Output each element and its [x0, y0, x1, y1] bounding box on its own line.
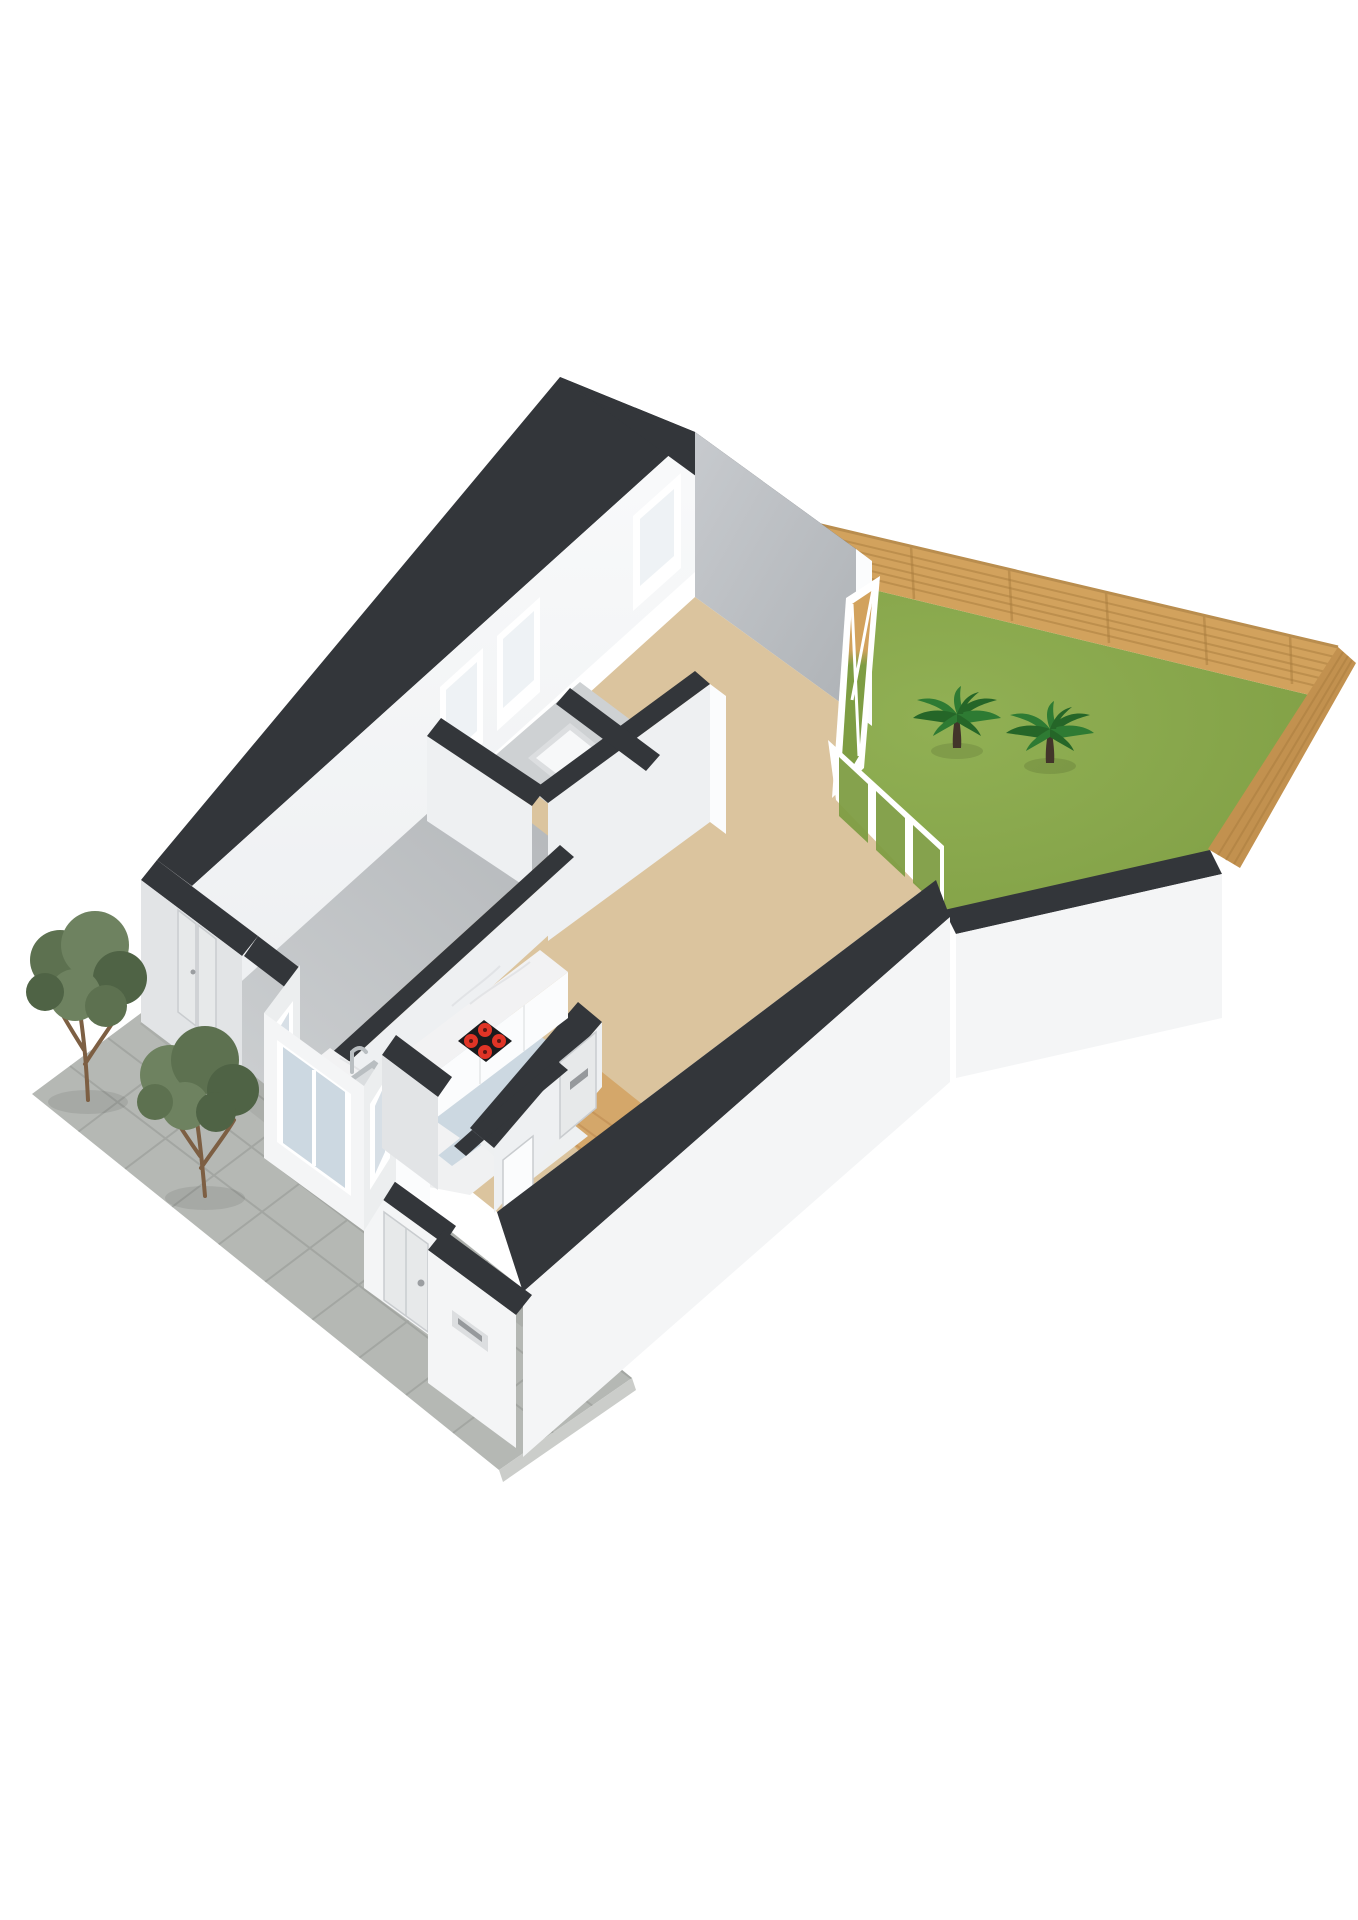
burner-4-core: [483, 1050, 487, 1054]
front-door-handle: [418, 1280, 425, 1287]
side-door-handle: [191, 970, 196, 975]
floorplan-canvas: [0, 0, 1358, 1920]
side-door-leaf-2: [198, 925, 216, 1041]
burner-2-core: [497, 1039, 501, 1043]
wall-living-hall-end-jamb: [710, 684, 726, 834]
side-door-leaf-1: [178, 910, 196, 1026]
floorplan-3d-render: [0, 0, 1358, 1920]
tree-1-foliage: [26, 911, 147, 1027]
burner-3-core: [469, 1039, 473, 1043]
burner-1-core: [483, 1028, 487, 1032]
